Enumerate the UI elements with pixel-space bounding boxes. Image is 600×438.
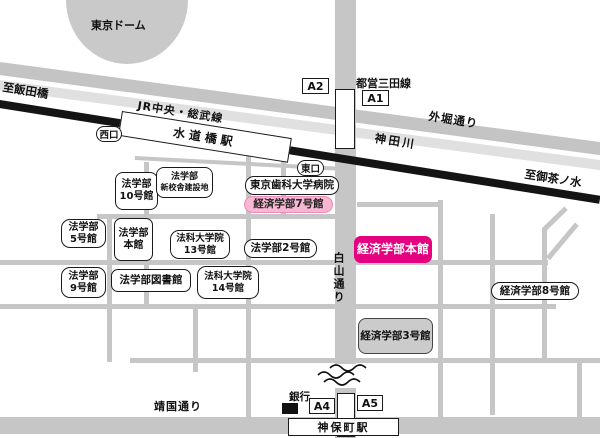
jimbocho-station-label: 神保町駅 [318, 419, 370, 435]
building-lawschool14-line2: 14号館 [212, 283, 244, 294]
bank-marker [282, 403, 298, 414]
exit-a1-box: A1 [362, 90, 389, 106]
building-lawschool13-line1: 法科大学院 [176, 233, 224, 244]
exit-a5-box: A5 [357, 395, 383, 411]
sotobori-dori-road [0, 62, 600, 155]
building-law-new-site: 法学部 新校舎建設地 [156, 167, 213, 198]
to-iidabashi-label: 至飯田橋 [1, 79, 49, 102]
building-law10: 法学部 10号館 [115, 172, 158, 210]
west-exit-badge: 西口 [96, 126, 122, 142]
kanda-river [0, 80, 600, 170]
building-law-new-line2: 新校舎建設地 [161, 183, 209, 192]
west-exit-label: 西口 [99, 127, 118, 141]
exit-a4-label: A4 [314, 400, 330, 413]
building-econ8-label: 経済学部8号館 [500, 285, 570, 297]
building-law5-line1: 法学部 [69, 222, 99, 234]
bank-label: 銀行 [289, 389, 310, 404]
building-law-main-line2: 本館 [124, 240, 144, 252]
building-law10-line2: 10号館 [120, 191, 154, 203]
building-law2-label: 法学部2号館 [251, 242, 311, 254]
hakusan-dori-label: 白山通り [330, 252, 346, 304]
exit-a2-label: A2 [307, 80, 323, 93]
exit-a4-box: A4 [309, 398, 335, 414]
building-law9: 法学部 9号館 [61, 267, 106, 298]
street-segment [546, 223, 579, 261]
building-lawschool14: 法科大学院 14号館 [197, 266, 259, 299]
building-lawschool14-line1: 法科大学院 [204, 271, 252, 282]
building-lawschool13-line2: 13号館 [184, 245, 216, 256]
building-econ8: 経済学部8号館 [491, 282, 579, 300]
building-econ-main-highlight: 経済学部本館 [354, 236, 432, 263]
east-exit-badge: 東口 [297, 160, 324, 176]
street-segment [438, 200, 443, 418]
building-econ3: 経済学部3号館 [358, 318, 433, 354]
exit-a1-label: A1 [367, 92, 383, 105]
building-econ3-label: 経済学部3号館 [360, 330, 430, 342]
building-econ7-highlight: 経済学部7号館 [244, 196, 333, 213]
building-law-library-label: 法学部図書館 [120, 274, 183, 286]
building-law10-line1: 法学部 [122, 179, 152, 191]
street-segment [0, 260, 548, 265]
suidobashi-station-label: 水道橋駅 [172, 123, 238, 150]
street-segment [542, 206, 568, 231]
yasukuni-dori-label: 靖国通り [154, 398, 202, 414]
street-segment [490, 214, 495, 415]
exit-a5-label: A5 [362, 397, 378, 410]
building-law-new-line1: 法学部 [171, 172, 198, 183]
building-law5: 法学部 5号館 [61, 219, 106, 248]
building-law-main: 法学部 本館 [114, 218, 153, 261]
building-law9-line2: 9号館 [70, 283, 97, 295]
street-segment [577, 358, 582, 417]
building-law-library: 法学部図書館 [111, 269, 191, 292]
kanda-river-label: 神田川 [373, 130, 417, 152]
road-break-wavy-lines [314, 363, 372, 387]
campus-access-map: 東京ドーム 水道橋駅 JR中央・総武線 神保町駅 至飯田橋 外堀通り 神 [0, 0, 600, 438]
tokyo-dome-label: 東京ドーム [91, 17, 146, 33]
exit-a2-box: A2 [302, 78, 329, 94]
mita-line-label: 都営三田線 [356, 75, 411, 91]
building-law-main-line1: 法学部 [119, 228, 149, 240]
street-segment [0, 304, 556, 309]
building-lawschool13: 法科大学院 13号館 [170, 230, 230, 259]
building-econ7-label: 経済学部7号館 [253, 198, 323, 210]
mita-line-station-rect [335, 89, 355, 149]
building-law2: 法学部2号館 [244, 239, 317, 258]
east-exit-label: 東口 [301, 161, 320, 175]
building-law9-line1: 法学部 [69, 271, 99, 283]
building-law5-line2: 5号館 [70, 234, 97, 246]
building-dental-label: 東京歯科大学病院 [250, 179, 334, 191]
building-dental-hospital: 東京歯科大学病院 [245, 176, 339, 195]
building-econ-main-label: 経済学部本館 [357, 242, 429, 256]
street-segment [357, 202, 440, 207]
jimbocho-station-box: 神保町駅 [288, 418, 399, 436]
